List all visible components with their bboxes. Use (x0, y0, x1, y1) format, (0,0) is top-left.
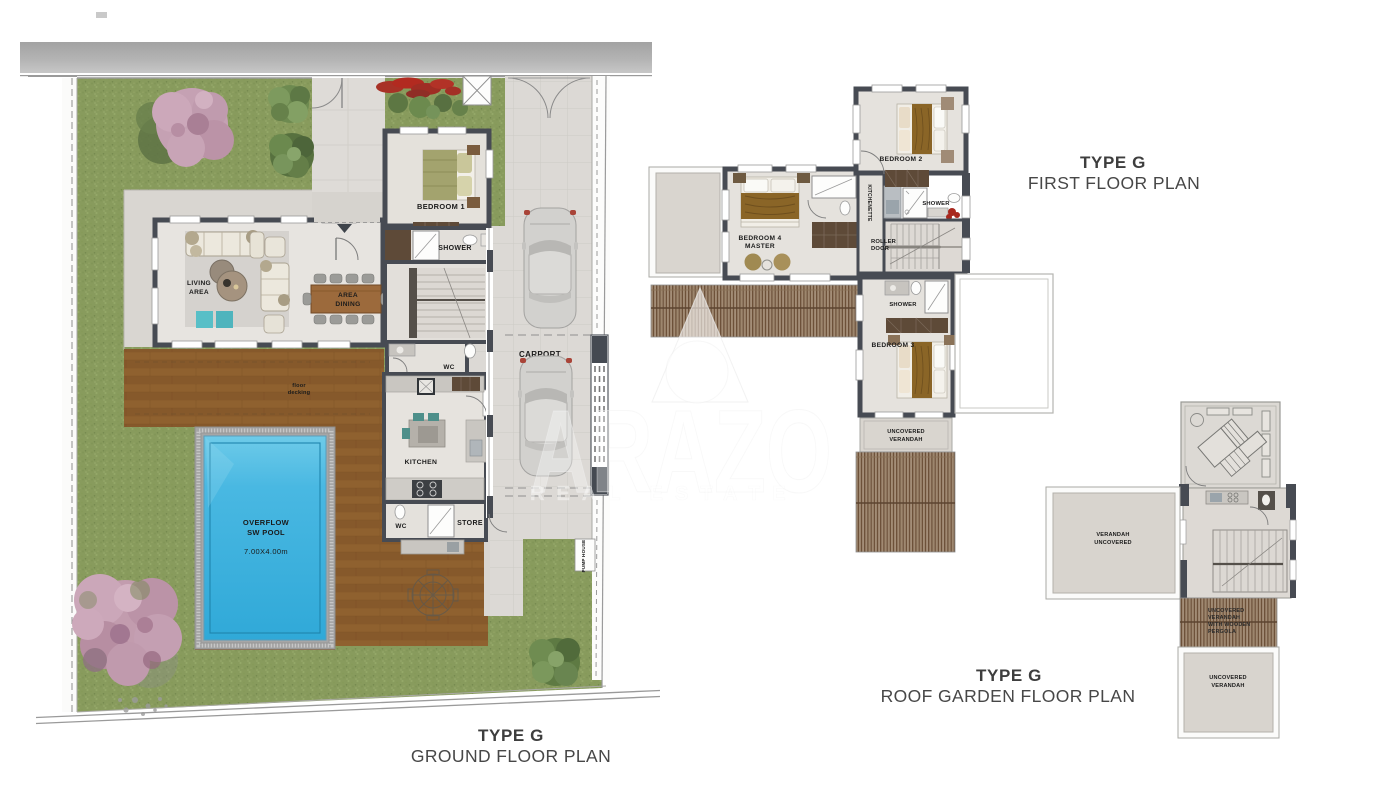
svg-text:VERANDAH: VERANDAH (1096, 532, 1129, 538)
svg-text:PERGOLA: PERGOLA (1208, 629, 1236, 635)
svg-text:BEDROOM 4: BEDROOM 4 (738, 235, 781, 242)
svg-text:KITCHEN: KITCHEN (405, 459, 438, 466)
svg-text:UNCOVERED: UNCOVERED (1094, 540, 1132, 546)
svg-text:LIVING: LIVING (187, 280, 211, 287)
svg-text:TYPE G: TYPE G (478, 726, 544, 745)
svg-text:STORE: STORE (457, 520, 483, 527)
svg-text:UNCOVERED: UNCOVERED (1209, 675, 1247, 681)
svg-text:DOOR: DOOR (871, 246, 890, 252)
svg-text:WITH WOODEN: WITH WOODEN (1208, 622, 1250, 628)
svg-text:TYPE G: TYPE G (976, 666, 1042, 685)
svg-text:ROLLER: ROLLER (871, 239, 897, 245)
svg-text:PUMP HOUSE: PUMP HOUSE (581, 540, 586, 573)
svg-text:FIRST FLOOR PLAN: FIRST FLOOR PLAN (1028, 173, 1200, 193)
svg-text:decking: decking (288, 390, 311, 396)
svg-text:UNCOVERED: UNCOVERED (887, 429, 925, 435)
svg-text:BEDROOM 3: BEDROOM 3 (871, 342, 914, 349)
svg-text:floor: floor (292, 383, 306, 389)
svg-text:AREA: AREA (338, 292, 358, 299)
svg-text:KITCHENETTE: KITCHENETTE (866, 184, 872, 222)
svg-text:WC: WC (395, 523, 406, 530)
svg-text:7.00X4.00m: 7.00X4.00m (244, 547, 288, 556)
svg-text:SHOWER: SHOWER (889, 302, 917, 308)
svg-text:ROOF GARDEN FLOOR PLAN: ROOF GARDEN FLOOR PLAN (881, 686, 1136, 706)
svg-text:VERANDAH: VERANDAH (1208, 615, 1240, 621)
svg-text:REAL ESTATE: REAL ESTATE (530, 483, 798, 505)
svg-text:VERANDAH: VERANDAH (889, 437, 922, 443)
svg-text:GROUND FLOOR PLAN: GROUND FLOOR PLAN (411, 746, 611, 766)
svg-text:SHOWER: SHOWER (922, 201, 950, 207)
svg-text:SHOWER: SHOWER (438, 245, 472, 252)
svg-text:OVERFLOW: OVERFLOW (243, 518, 290, 527)
svg-text:MASTER: MASTER (745, 243, 775, 250)
svg-text:WC: WC (443, 364, 454, 371)
svg-text:UNCOVERED: UNCOVERED (1208, 608, 1244, 614)
svg-text:DINING: DINING (335, 301, 360, 308)
svg-text:BEDROOM 1: BEDROOM 1 (417, 202, 465, 211)
svg-text:BEDROOM 2: BEDROOM 2 (879, 156, 922, 163)
svg-text:TYPE G: TYPE G (1080, 153, 1146, 172)
svg-text:VERANDAH: VERANDAH (1211, 683, 1244, 689)
svg-text:SW POOL: SW POOL (247, 528, 285, 537)
svg-text:AREA: AREA (189, 289, 209, 296)
